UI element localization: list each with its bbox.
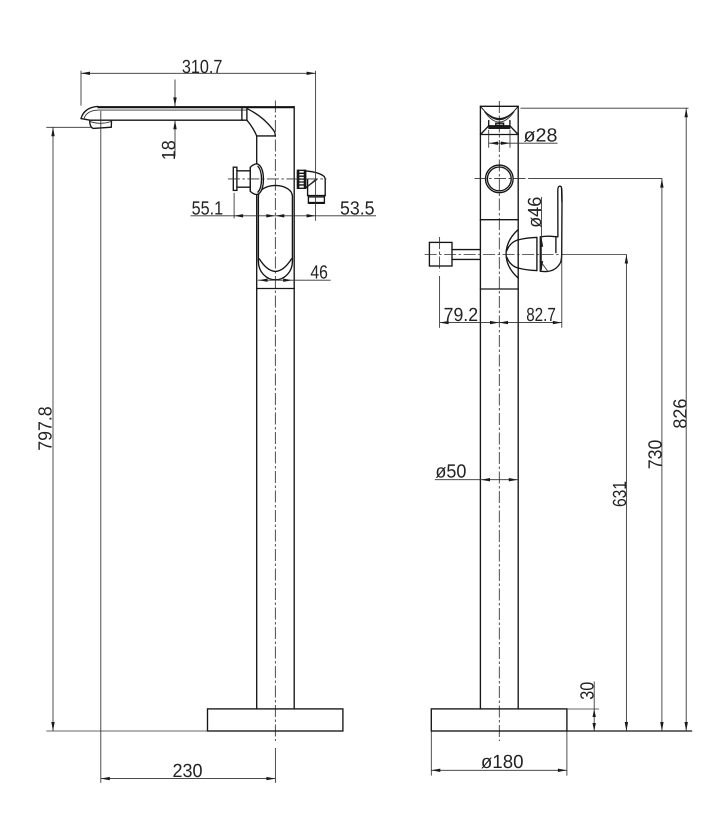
svg-text:46: 46	[310, 263, 328, 284]
svg-text:30: 30	[578, 682, 599, 700]
svg-text:82.7: 82.7	[526, 305, 556, 326]
svg-text:631: 631	[610, 481, 631, 507]
svg-text:826: 826	[670, 399, 691, 429]
svg-text:79.2: 79.2	[444, 305, 479, 326]
svg-text:730: 730	[645, 440, 666, 470]
svg-text:55.1: 55.1	[192, 199, 224, 220]
svg-text:18: 18	[159, 140, 180, 160]
svg-text:310.7: 310.7	[182, 57, 223, 78]
svg-text:ø180: ø180	[481, 752, 524, 773]
svg-text:797.8: 797.8	[36, 406, 57, 451]
svg-text:ø50: ø50	[435, 462, 466, 483]
svg-text:53.5: 53.5	[340, 199, 375, 220]
svg-text:230: 230	[173, 761, 203, 782]
svg-text:ø28: ø28	[524, 125, 558, 146]
svg-text:ø46: ø46	[525, 197, 546, 228]
